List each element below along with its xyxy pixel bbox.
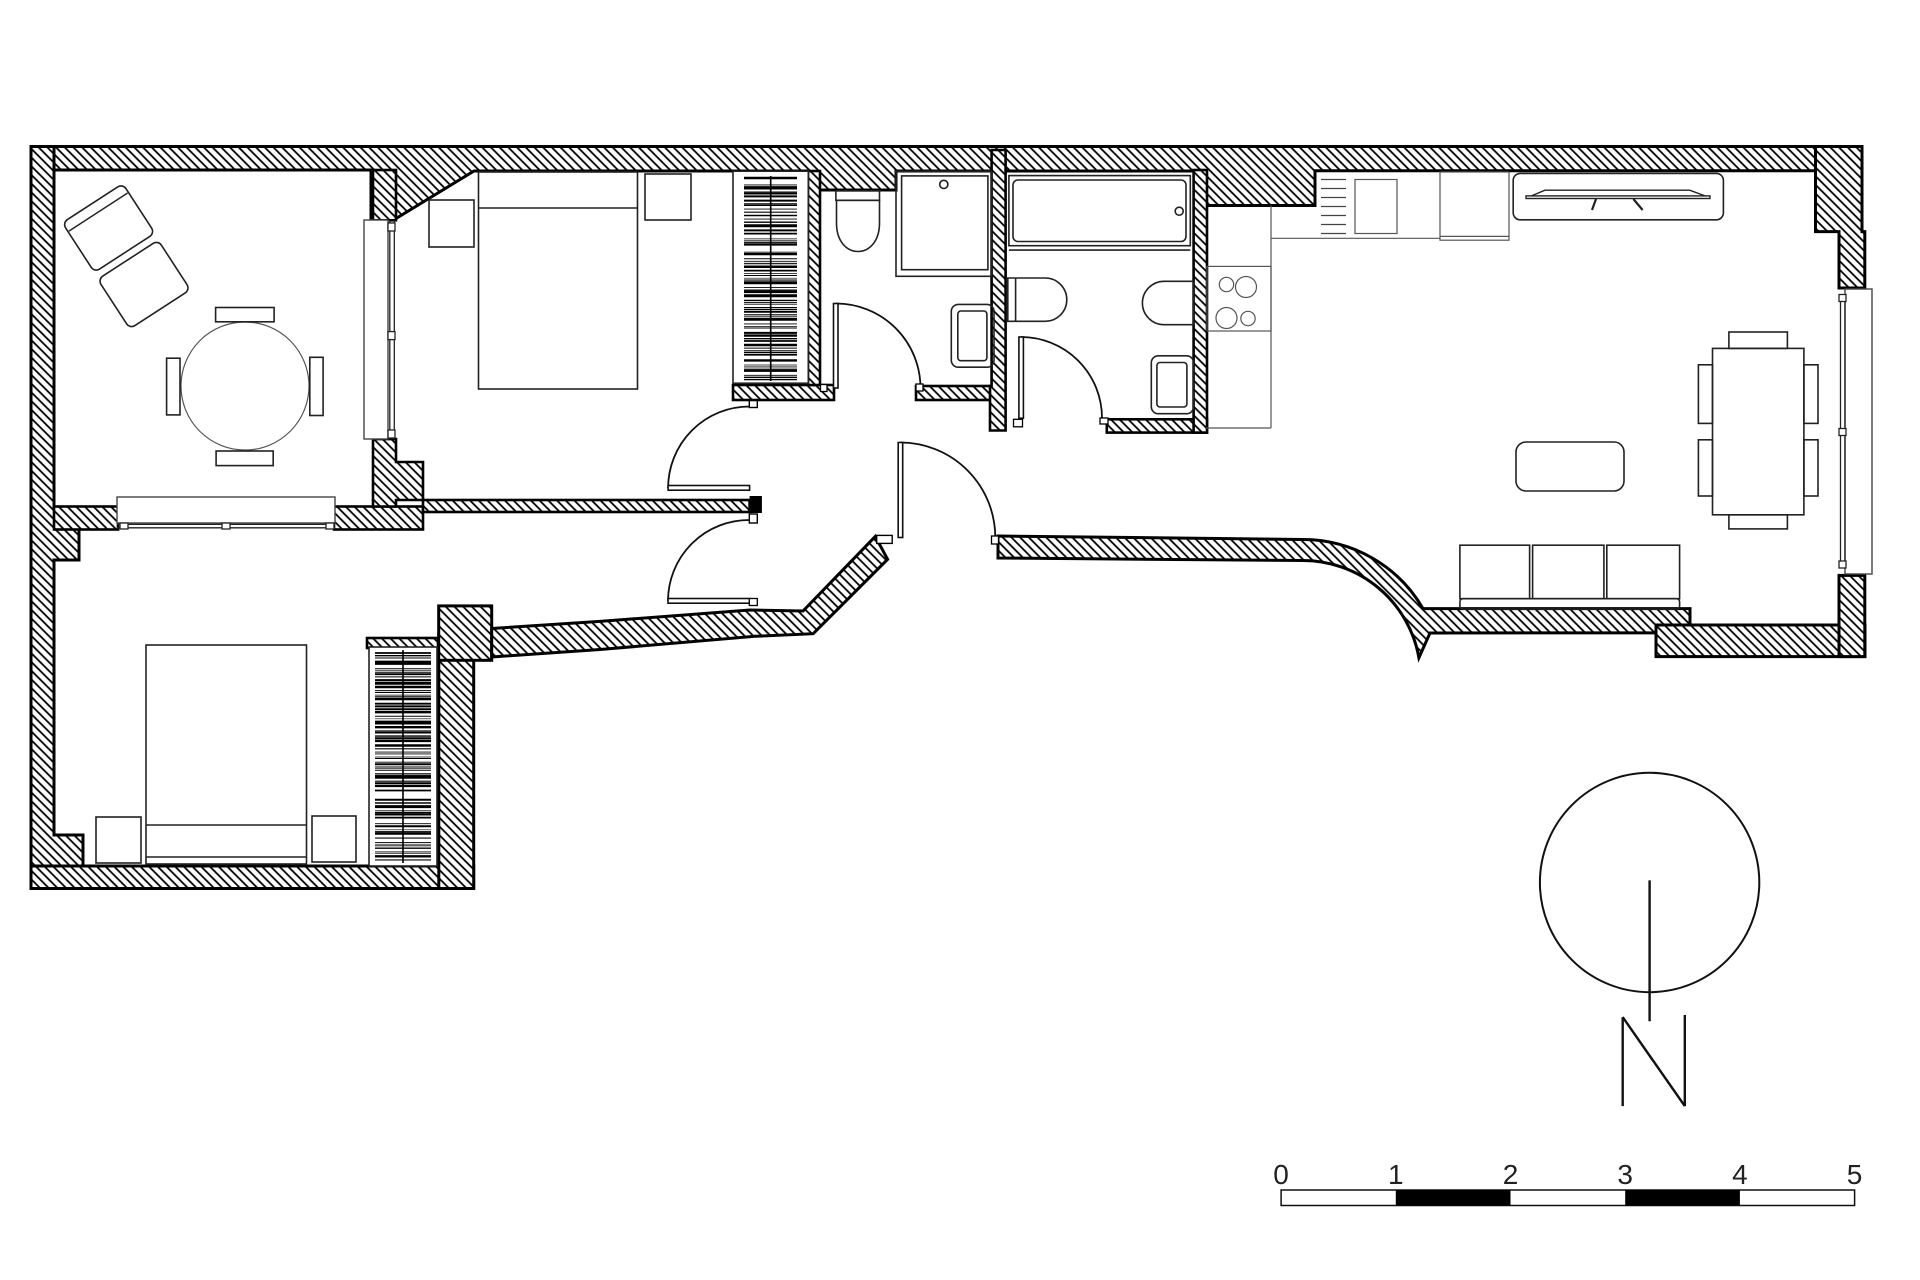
svg-text:1: 1 xyxy=(1388,1159,1404,1190)
svg-text:2: 2 xyxy=(1503,1159,1519,1190)
svg-text:5: 5 xyxy=(1847,1159,1863,1190)
svg-text:3: 3 xyxy=(1617,1159,1633,1190)
svg-text:4: 4 xyxy=(1732,1159,1748,1190)
svg-text:0: 0 xyxy=(1273,1159,1289,1190)
